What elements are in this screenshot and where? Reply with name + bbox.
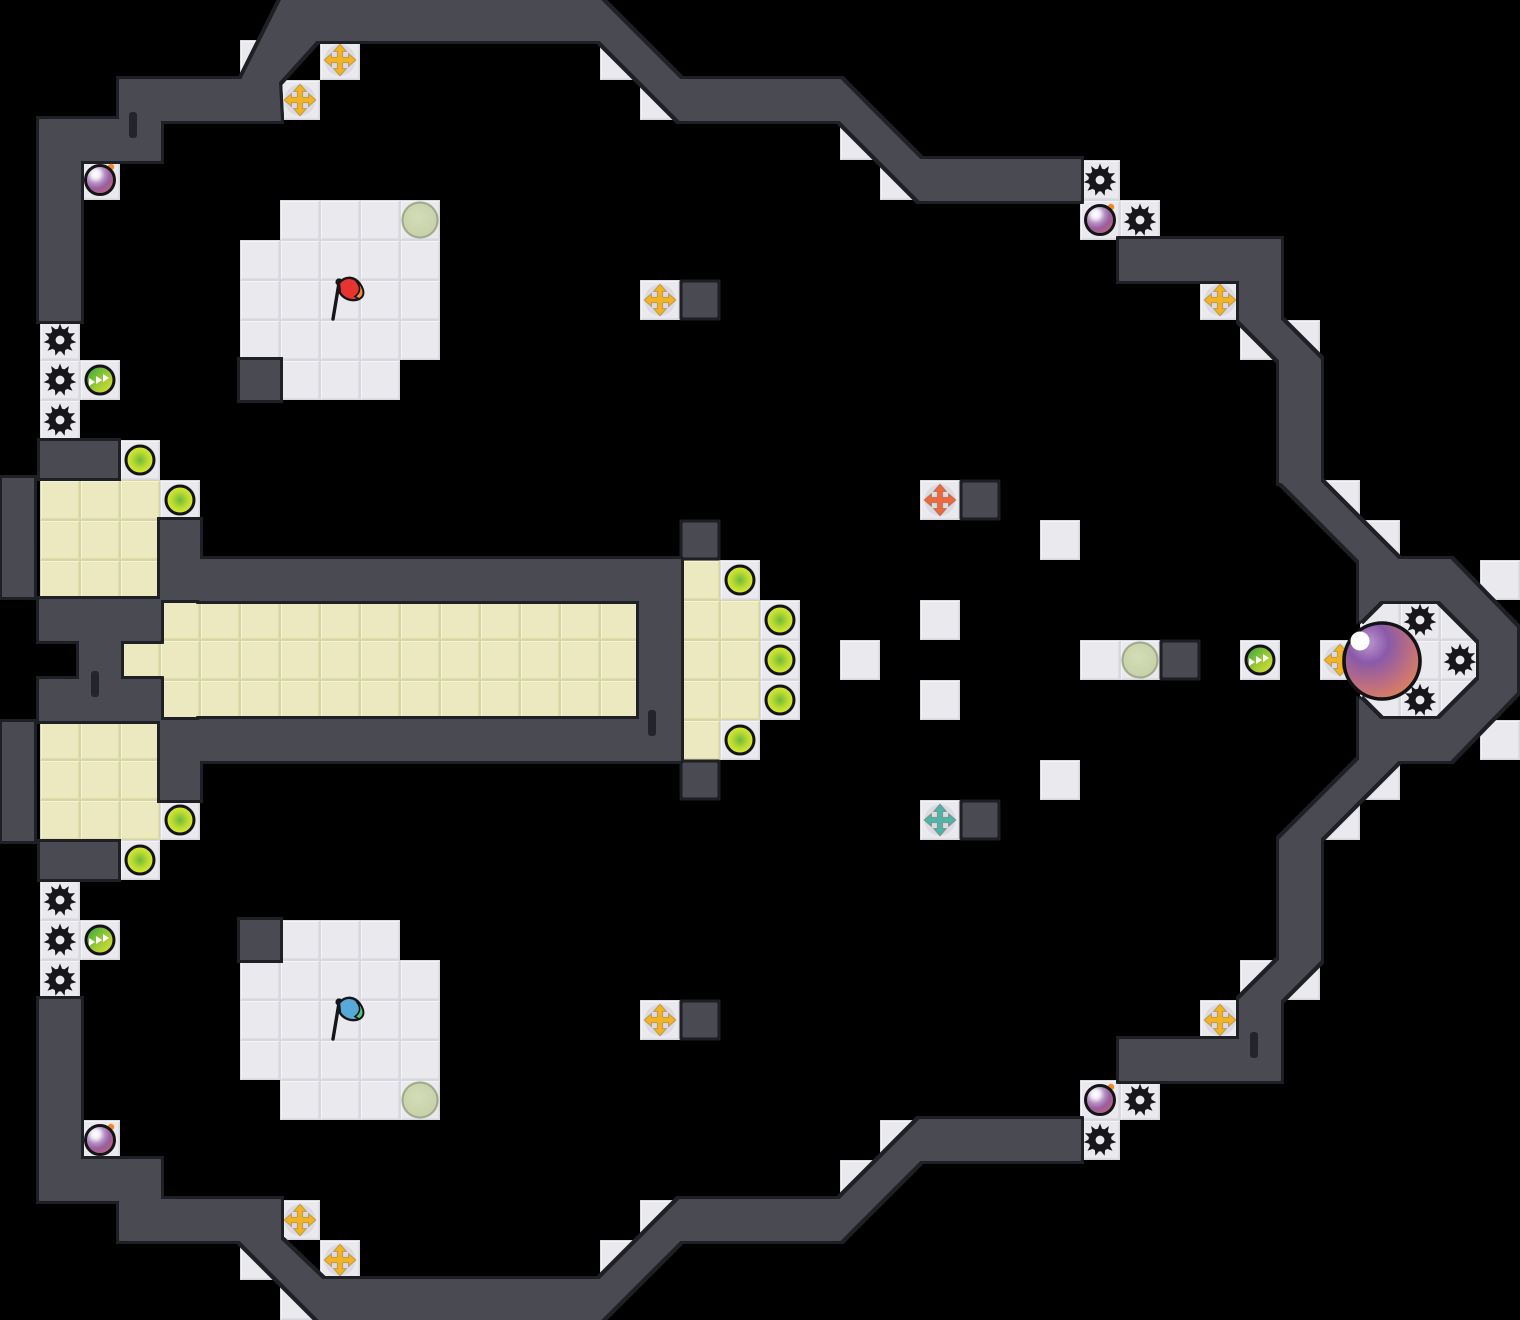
yellow-boost-icon xyxy=(121,441,159,479)
yellow-boost-icon xyxy=(161,481,199,519)
yellow-boost-icon xyxy=(121,841,159,879)
spike-icon xyxy=(1440,640,1480,680)
spike-icon xyxy=(1120,200,1160,240)
spawn-circle xyxy=(399,199,441,241)
player-ball xyxy=(1339,618,1425,704)
gold-cross-icon xyxy=(320,1240,360,1280)
spike-icon xyxy=(1400,600,1440,640)
yellow-boost-icon xyxy=(721,721,759,759)
spike-icon xyxy=(40,360,80,400)
spike-icon xyxy=(1080,160,1120,200)
bomb-icon xyxy=(78,1118,122,1162)
spike-icon xyxy=(40,400,80,440)
gold-cross-icon xyxy=(280,80,320,120)
spike-icon xyxy=(1400,680,1440,720)
game-board[interactable] xyxy=(0,0,1520,1320)
bomb-icon xyxy=(1078,1078,1122,1122)
green-powerup-icon xyxy=(81,921,119,959)
spike-icon xyxy=(40,960,80,1000)
spawn-circle xyxy=(399,1079,441,1121)
spike-icon xyxy=(40,920,80,960)
yellow-boost-icon xyxy=(721,561,759,599)
gold-cross-icon xyxy=(1200,1000,1240,1040)
yellow-boost-icon xyxy=(761,601,799,639)
gold-cross-icon xyxy=(640,280,680,320)
yellow-boost-icon xyxy=(761,641,799,679)
spike-icon xyxy=(40,880,80,920)
green-powerup-icon xyxy=(81,361,119,399)
teal-cross-icon xyxy=(920,800,960,840)
spike-icon xyxy=(1080,1120,1120,1160)
yellow-boost-icon xyxy=(161,801,199,839)
gold-cross-icon xyxy=(320,40,360,80)
bomb-icon xyxy=(1078,198,1122,242)
green-powerup-icon xyxy=(1241,641,1279,679)
bomb-icon xyxy=(78,158,122,202)
blue-flag-icon xyxy=(310,990,370,1050)
spawn-circle xyxy=(1119,639,1161,681)
yellow-boost-icon xyxy=(761,681,799,719)
orange-cross-icon xyxy=(920,480,960,520)
object-layer xyxy=(0,0,1520,1320)
gold-cross-icon xyxy=(1200,280,1240,320)
gold-cross-icon xyxy=(640,1000,680,1040)
spike-icon xyxy=(1120,1080,1160,1120)
gold-cross-icon xyxy=(280,1200,320,1240)
spike-icon xyxy=(40,320,80,360)
gold-cross-icon xyxy=(1320,640,1360,680)
red-flag-icon xyxy=(310,270,370,330)
